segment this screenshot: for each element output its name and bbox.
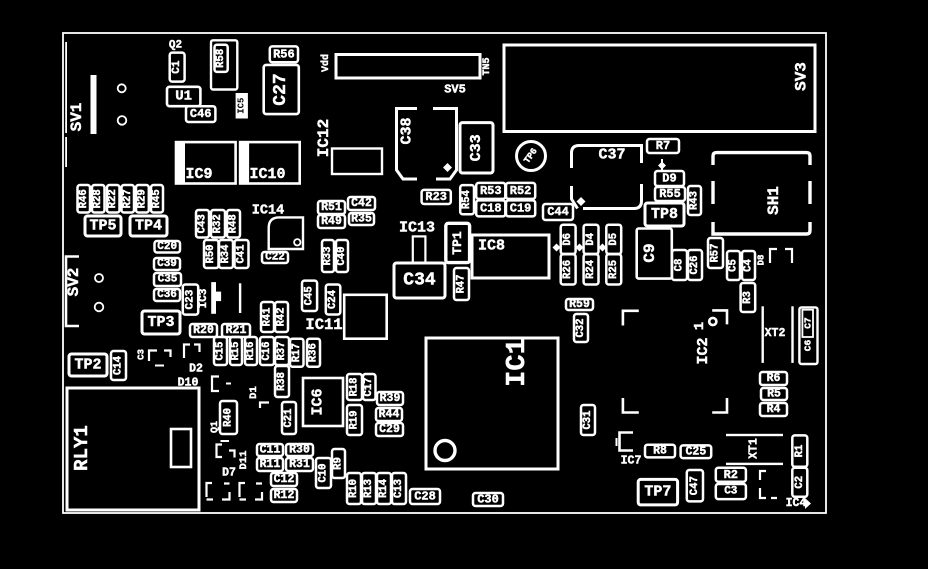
svg-text:R51: R51 [321, 201, 342, 214]
svg-text:R27: R27 [122, 189, 134, 208]
svg-text:C7: C7 [802, 317, 813, 329]
svg-text:C29: C29 [379, 423, 400, 436]
svg-text:C34: C34 [403, 271, 436, 291]
svg-text:C13: C13 [393, 479, 405, 498]
svg-text:C28: C28 [414, 490, 436, 504]
svg-text:TP2: TP2 [74, 357, 101, 374]
svg-text:C3: C3 [137, 349, 147, 360]
svg-text:R9: R9 [333, 457, 345, 470]
svg-text:C10: C10 [318, 463, 330, 482]
svg-text:R15: R15 [230, 341, 242, 360]
svg-text:C16: C16 [261, 341, 273, 360]
svg-text:R19: R19 [349, 410, 361, 429]
svg-text:IC4: IC4 [786, 497, 807, 510]
svg-text:C26: C26 [689, 255, 701, 274]
svg-text:Q2: Q2 [169, 40, 182, 52]
svg-text:IC2: IC2 [695, 337, 712, 364]
svg-text:R47: R47 [456, 274, 468, 293]
svg-text:R46: R46 [78, 189, 90, 208]
svg-text:R42: R42 [276, 307, 288, 326]
svg-text:D5: D5 [608, 233, 620, 246]
svg-text:C32: C32 [575, 318, 587, 337]
svg-text:C45: C45 [304, 286, 316, 305]
svg-text:R49: R49 [321, 215, 342, 228]
svg-text:R6: R6 [767, 372, 781, 385]
svg-text:R45: R45 [151, 189, 163, 208]
svg-text:R35: R35 [351, 213, 372, 226]
svg-text:D2: D2 [189, 363, 203, 376]
svg-text:D6: D6 [562, 233, 574, 246]
svg-text:R32: R32 [212, 214, 224, 233]
svg-text:C24: C24 [327, 289, 339, 309]
svg-text:C40: C40 [336, 246, 348, 265]
svg-text:C27: C27 [271, 73, 291, 105]
svg-text:C25: C25 [686, 445, 707, 458]
svg-text:C12: C12 [274, 473, 295, 486]
svg-text:SH1: SH1 [765, 186, 783, 215]
svg-text:C31: C31 [582, 410, 594, 429]
svg-text:D8: D8 [757, 255, 767, 266]
svg-text:C36: C36 [157, 289, 177, 301]
svg-text:C6: C6 [802, 340, 813, 352]
svg-text:R7: R7 [656, 139, 670, 153]
svg-text:RLY1: RLY1 [71, 425, 93, 471]
svg-text:R8: R8 [653, 445, 667, 458]
svg-text:R37: R37 [276, 341, 288, 360]
svg-text:C39: C39 [157, 258, 177, 270]
svg-text:R25: R25 [608, 260, 620, 279]
svg-text:R20: R20 [193, 324, 214, 337]
svg-text:R13: R13 [363, 479, 375, 498]
svg-text:IC3: IC3 [198, 288, 210, 308]
svg-text:C38: C38 [399, 117, 416, 144]
svg-text:R3: R3 [742, 291, 754, 304]
svg-text:U1: U1 [175, 89, 192, 105]
svg-text:SV1: SV1 [68, 103, 86, 132]
svg-text:R40: R40 [223, 408, 235, 427]
svg-text:C46: C46 [190, 107, 212, 121]
svg-text:IC9: IC9 [186, 166, 213, 183]
svg-text:SV5: SV5 [444, 83, 466, 97]
svg-text:D9: D9 [662, 172, 676, 186]
svg-text:IC7: IC7 [621, 455, 642, 468]
svg-text:R24: R24 [585, 259, 597, 279]
svg-text:C42: C42 [351, 197, 372, 210]
svg-text:C43: C43 [197, 214, 209, 233]
svg-text:C47: C47 [689, 476, 701, 495]
svg-text:R23: R23 [425, 190, 447, 204]
svg-text:R44: R44 [379, 408, 400, 421]
svg-text:C3: C3 [724, 486, 738, 498]
svg-text:R12: R12 [274, 489, 295, 502]
svg-text:R38: R38 [276, 372, 288, 391]
svg-text:IC10: IC10 [250, 166, 286, 183]
svg-text:R5: R5 [767, 388, 781, 401]
svg-text:R52: R52 [510, 184, 532, 198]
svg-text:XT2: XT2 [765, 327, 786, 340]
svg-text:R17: R17 [291, 343, 303, 362]
svg-text:R59: R59 [569, 298, 590, 311]
svg-text:Vdd: Vdd [320, 54, 332, 72]
svg-text:C18: C18 [480, 201, 502, 215]
svg-text:IC8: IC8 [478, 238, 505, 255]
svg-text:XT1: XT1 [748, 438, 761, 459]
svg-text:R26: R26 [562, 260, 574, 279]
svg-text:R53: R53 [480, 184, 502, 198]
svg-text:TP1: TP1 [450, 231, 465, 255]
svg-text:R31: R31 [289, 458, 310, 471]
svg-text:TP5: TP5 [89, 218, 116, 235]
svg-text:R14: R14 [378, 478, 390, 498]
svg-text:C8: C8 [674, 259, 686, 272]
svg-text:D1: D1 [248, 386, 260, 399]
svg-text:R36: R36 [308, 343, 320, 362]
svg-text:IC5: IC5 [237, 98, 247, 114]
svg-text:C19: C19 [510, 201, 532, 215]
svg-text:R54: R54 [461, 189, 473, 209]
svg-text:R4: R4 [767, 403, 781, 416]
svg-text:R1: R1 [794, 445, 806, 458]
svg-text:SV2: SV2 [65, 268, 83, 297]
svg-text:IC12: IC12 [315, 119, 333, 157]
svg-text:R48: R48 [228, 214, 240, 233]
svg-text:D4: D4 [585, 232, 597, 245]
svg-text:C41: C41 [236, 244, 248, 263]
svg-text:TP4: TP4 [135, 218, 162, 235]
svg-text:R58: R58 [215, 49, 227, 68]
svg-text:C23: C23 [185, 289, 197, 309]
svg-text:R29: R29 [136, 189, 148, 208]
svg-text:C37: C37 [598, 147, 625, 164]
svg-text:SV3: SV3 [793, 62, 811, 91]
svg-text:R34: R34 [220, 244, 232, 264]
svg-text:R55: R55 [659, 187, 681, 201]
svg-text:D7: D7 [222, 467, 236, 480]
svg-text:C33: C33 [468, 134, 485, 161]
svg-text:TP7: TP7 [644, 484, 671, 501]
svg-text:R41: R41 [262, 307, 274, 326]
svg-text:R22: R22 [107, 189, 119, 208]
svg-text:R33: R33 [322, 246, 334, 265]
svg-text:C1: C1 [171, 60, 183, 74]
svg-text:C30: C30 [477, 493, 499, 507]
svg-text:C22: C22 [265, 252, 285, 264]
svg-text:IC1: IC1 [503, 338, 533, 387]
svg-text:IC6: IC6 [310, 388, 327, 415]
svg-text:C14: C14 [113, 355, 125, 375]
svg-text:C44: C44 [547, 205, 569, 219]
svg-text:IC13: IC13 [399, 220, 435, 237]
svg-text:R11: R11 [260, 458, 281, 471]
svg-text:R56: R56 [273, 47, 295, 61]
svg-text:D11: D11 [238, 451, 250, 470]
svg-text:TP8: TP8 [651, 206, 678, 223]
svg-text:R28: R28 [92, 189, 104, 208]
svg-text:R39: R39 [380, 392, 401, 405]
svg-text:TP3: TP3 [147, 314, 174, 331]
svg-text:IC11: IC11 [305, 316, 342, 334]
svg-text:R50: R50 [205, 244, 217, 263]
svg-text:R21: R21 [226, 324, 247, 337]
svg-text:TN5: TN5 [482, 57, 493, 75]
svg-text:C11: C11 [260, 444, 281, 457]
svg-text:C21: C21 [283, 408, 295, 427]
svg-text:R30: R30 [289, 444, 310, 457]
svg-text:R16: R16 [245, 341, 257, 360]
svg-text:R43: R43 [689, 191, 701, 210]
svg-text:R2: R2 [724, 468, 738, 482]
svg-text:C35: C35 [158, 274, 178, 286]
svg-text:R18: R18 [349, 377, 361, 396]
svg-text:R57: R57 [710, 243, 722, 262]
svg-text:C5: C5 [728, 259, 740, 272]
svg-text:C4: C4 [743, 259, 755, 272]
svg-text:C2: C2 [794, 476, 806, 489]
svg-text:1: 1 [692, 322, 708, 330]
svg-text:C20: C20 [157, 241, 177, 253]
svg-text:C9: C9 [641, 243, 659, 262]
svg-text:C17: C17 [363, 377, 375, 396]
svg-text:C15: C15 [215, 341, 227, 360]
svg-text:R10: R10 [348, 479, 360, 498]
